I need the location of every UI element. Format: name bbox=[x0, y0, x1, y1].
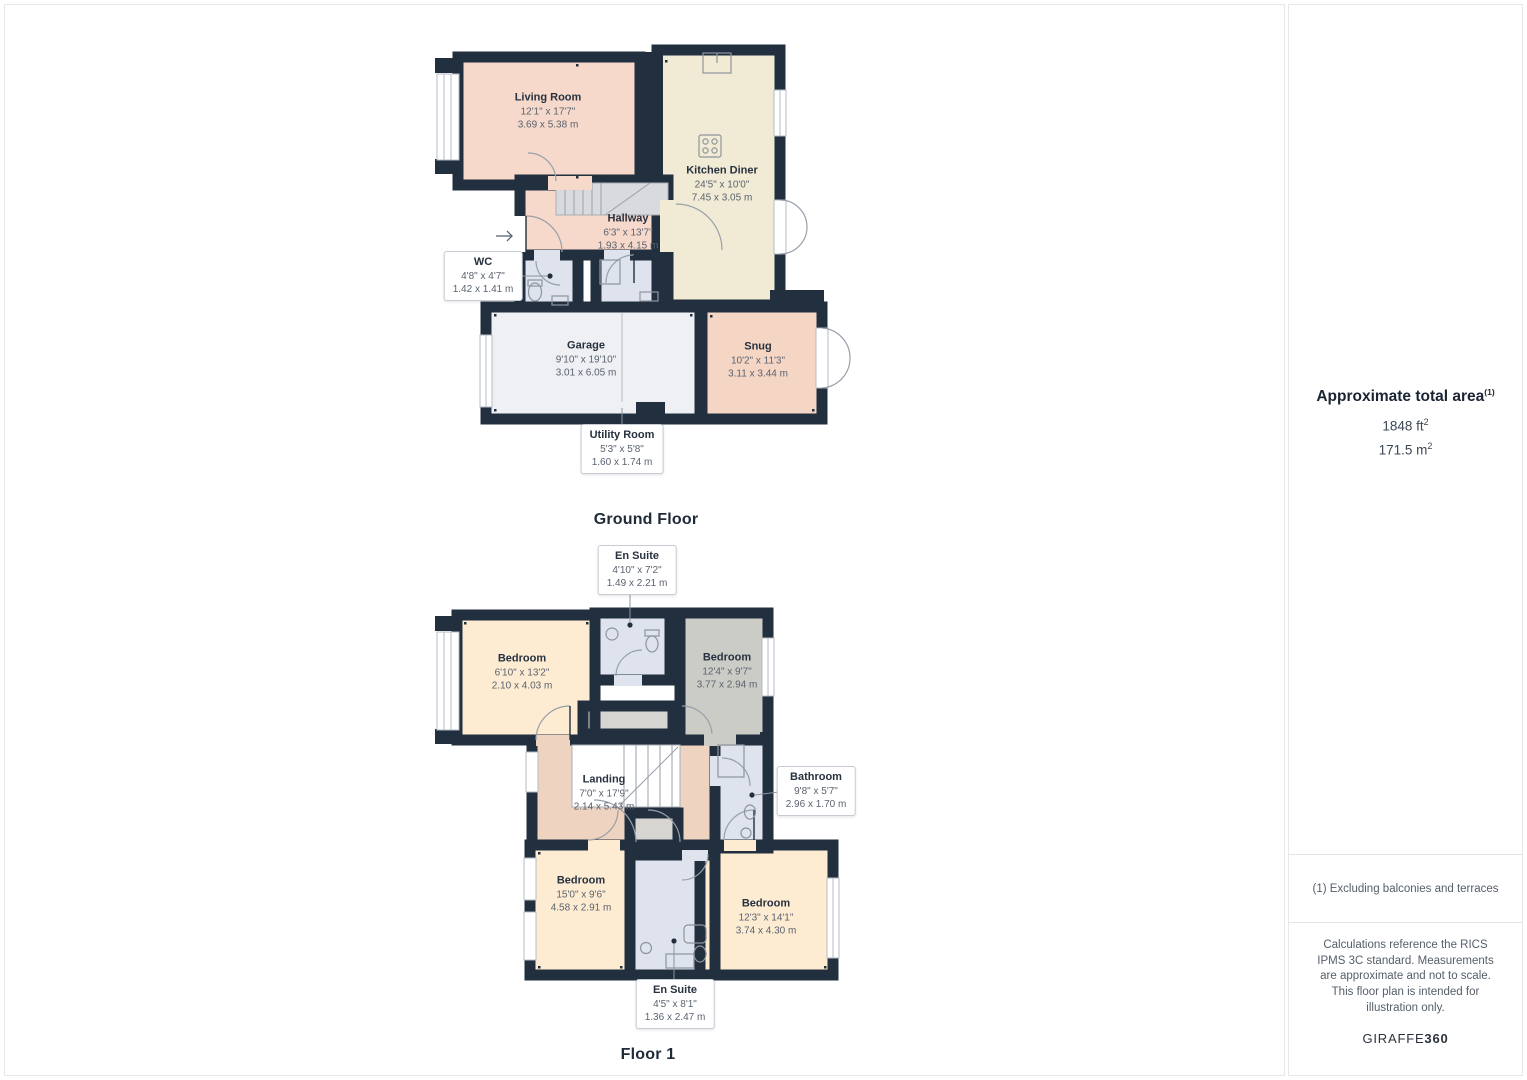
legal-section: Calculations reference the RICS IPMS 3C … bbox=[1289, 922, 1522, 1075]
giraffe360-logo: GIRAFFE360 bbox=[1289, 1031, 1522, 1046]
wc-area bbox=[520, 255, 578, 307]
room-label-bedroom-2: Bedroom 12'4" x 9'7" 3.77 x 2.94 m bbox=[697, 651, 758, 692]
footnote-section: (1) Excluding balconies and terraces bbox=[1289, 854, 1522, 922]
room-label-kitchen-diner: Kitchen Diner 24'5" x 10'0" 7.45 x 3.05 … bbox=[686, 164, 758, 205]
floorplan-page: Living Room 12'1" x 17'7" 3.69 x 5.38 m … bbox=[0, 0, 1527, 1080]
bathroom-label-dot bbox=[749, 792, 754, 797]
ground-floor-title: Ground Floor bbox=[594, 511, 699, 529]
room-label-hallway: Hallway 6'3" x 13'7" 1.93 x 4.15 m bbox=[598, 212, 659, 253]
ensuite-2-label-dot bbox=[671, 938, 676, 943]
ensuite-1-label-dot bbox=[627, 622, 632, 627]
floor-1-title: Floor 1 bbox=[621, 1046, 676, 1064]
footnote-text: (1) Excluding balconies and terraces bbox=[1312, 883, 1498, 895]
room-label-bedroom-4: Bedroom 12'3" x 14'1" 3.74 x 4.30 m bbox=[736, 897, 797, 938]
room-label-ensuite-2: En Suite 4'5" x 8'1" 1.36 x 2.47 m bbox=[636, 979, 715, 1029]
room-label-wc: WC 4'8" x 4'7" 1.42 x 1.41 m bbox=[444, 251, 523, 301]
footnote-marker: (1) bbox=[1484, 387, 1494, 397]
ensuite-1-area bbox=[595, 613, 670, 680]
total-area-section: Approximate total area(1) 1848 ft2 171.5… bbox=[1289, 5, 1522, 854]
total-area-heading: Approximate total area(1) bbox=[1289, 387, 1522, 406]
total-area-m: 171.5 m2 bbox=[1289, 441, 1522, 458]
room-label-bedroom-1: Bedroom 6'10" x 13'2" 2.10 x 4.03 m bbox=[492, 652, 553, 693]
room-label-utility-room: Utility Room 5'3" x 5'8" 1.60 x 1.74 m bbox=[581, 424, 664, 474]
room-label-garage: Garage 9'10" x 19'10" 3.01 x 6.05 m bbox=[556, 339, 617, 380]
room-label-landing: Landing 7'0" x 17'9" 2.14 x 5.43 m bbox=[574, 773, 635, 814]
room-label-bedroom-3: Bedroom 15'0" x 9'6" 4.58 x 2.91 m bbox=[551, 874, 612, 915]
total-area-ft: 1848 ft2 bbox=[1289, 417, 1522, 434]
room-label-bathroom: Bathroom 9'8" x 5'7" 2.96 x 1.70 m bbox=[777, 766, 856, 816]
disclaimer-text: Calculations reference the RICS IPMS 3C … bbox=[1312, 938, 1500, 1016]
entrance-arrow-icon bbox=[496, 231, 512, 241]
room-label-ensuite-1: En Suite 4'10" x 7'2" 1.49 x 2.21 m bbox=[598, 545, 677, 595]
wc-label-dot bbox=[547, 273, 552, 278]
room-label-living-room: Living Room 12'1" x 17'7" 3.69 x 5.38 m bbox=[515, 91, 582, 132]
floor-plan-drawing bbox=[0, 0, 1285, 1080]
summary-sidebar: Approximate total area(1) 1848 ft2 171.5… bbox=[1288, 4, 1523, 1076]
room-label-snug: Snug 10'2" x 11'3" 3.11 x 3.44 m bbox=[728, 340, 788, 381]
